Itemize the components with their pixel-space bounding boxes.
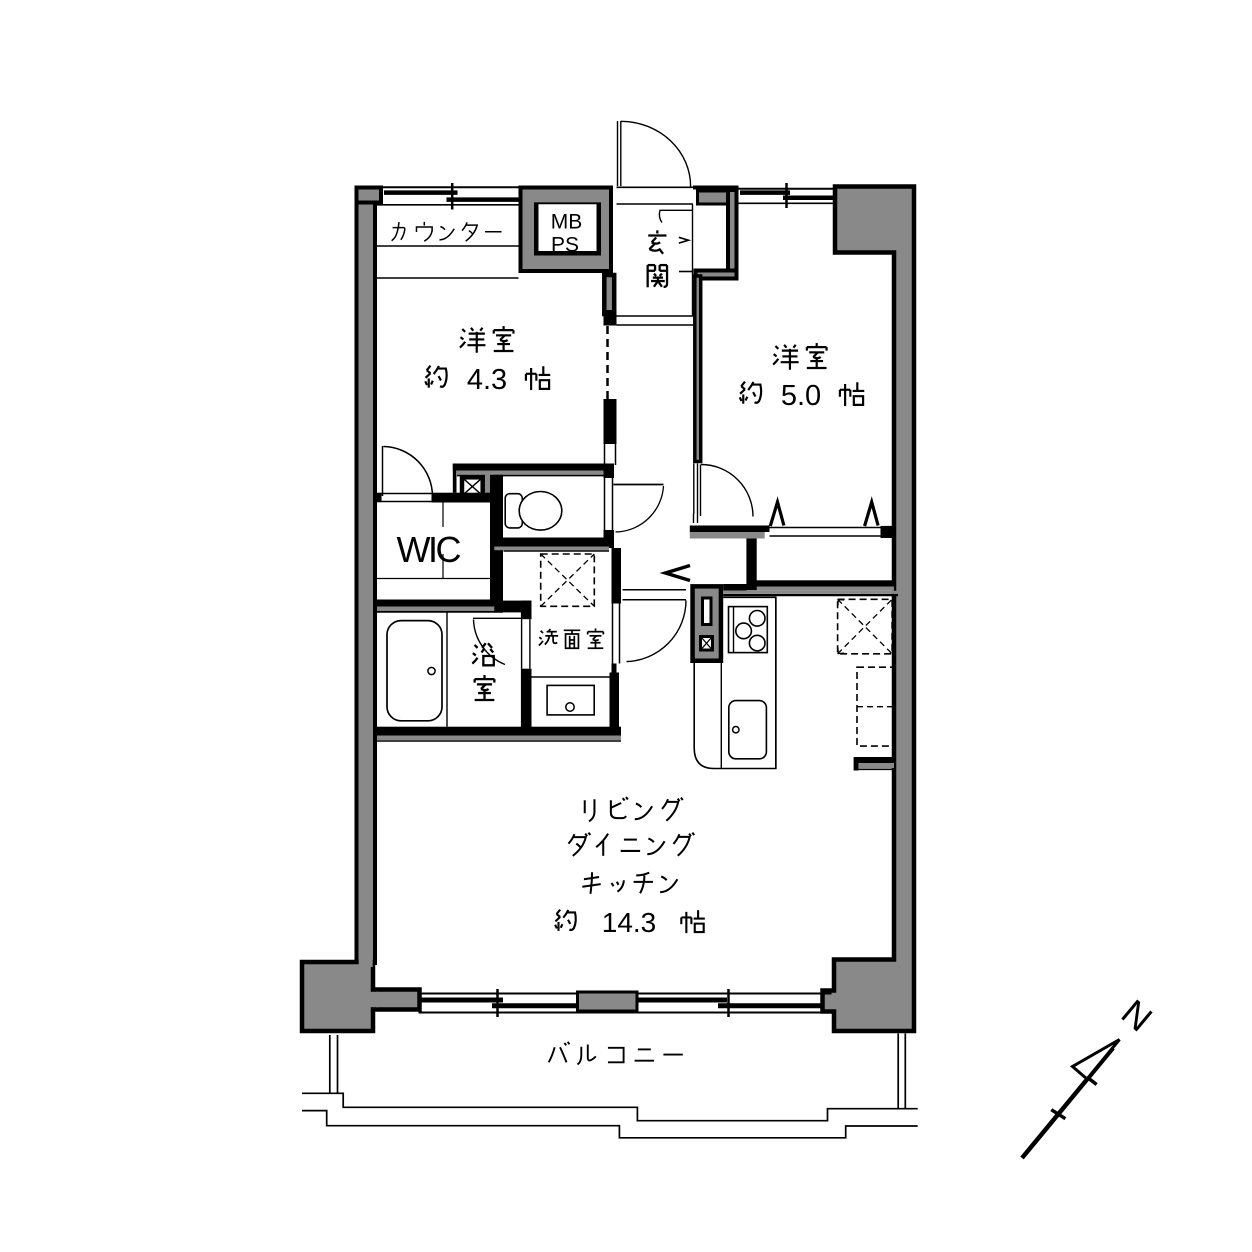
svg-text:4.3: 4.3 <box>467 364 507 396</box>
svg-text:WIC: WIC <box>397 529 461 570</box>
svg-text:5.0: 5.0 <box>781 380 821 412</box>
svg-text:14.3: 14.3 <box>602 907 657 938</box>
svg-text:MB: MB <box>551 211 583 234</box>
svg-text:PS: PS <box>551 234 579 257</box>
